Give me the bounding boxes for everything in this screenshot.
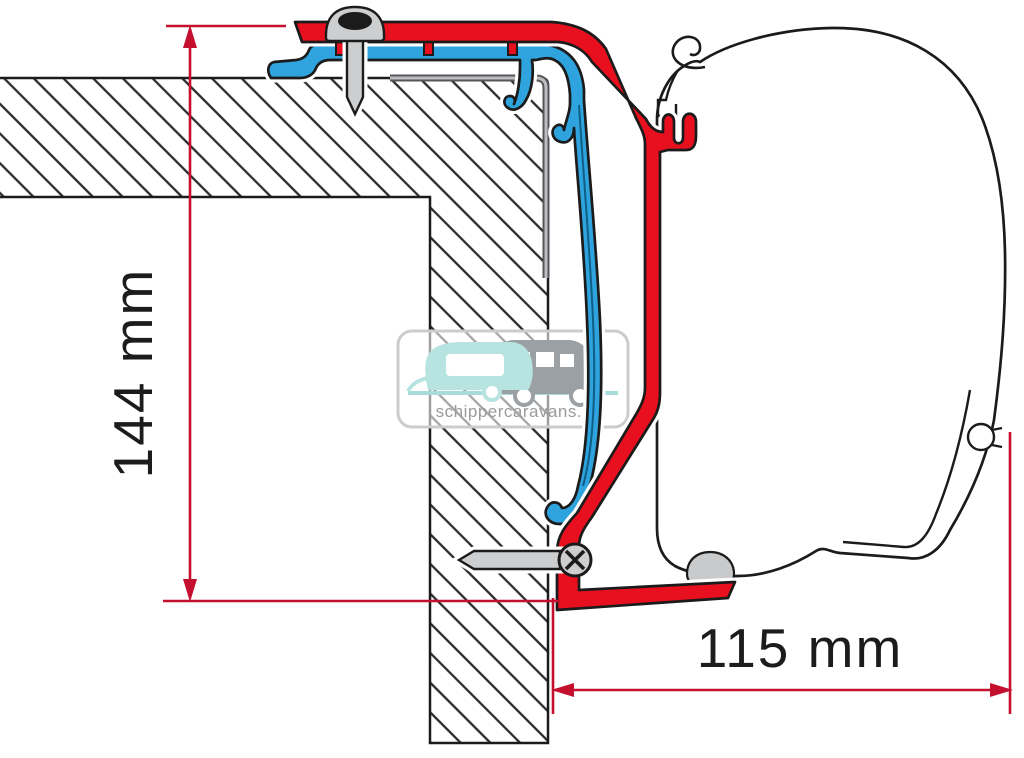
arrowhead-up	[183, 25, 197, 48]
side-screw-shaft	[459, 551, 560, 569]
dim-144-label: 144 mm	[102, 268, 164, 479]
dim-115-label: 115 mm	[697, 617, 904, 679]
awning-case-body	[657, 28, 1005, 576]
watermark-text: schippercaravans.nl	[436, 402, 597, 421]
top-screw-recess	[338, 12, 372, 30]
awning-case-profile	[657, 28, 1005, 586]
side-wall-screw	[459, 544, 591, 576]
top-screw-shaft	[347, 34, 363, 114]
arrowhead-left	[551, 683, 574, 697]
awning-case-keyhole	[968, 424, 994, 450]
diagram-canvas: schippercaravans.nl	[0, 0, 1024, 758]
technical-diagram: schippercaravans.nl	[0, 0, 1024, 758]
arrowhead-down	[183, 579, 197, 602]
